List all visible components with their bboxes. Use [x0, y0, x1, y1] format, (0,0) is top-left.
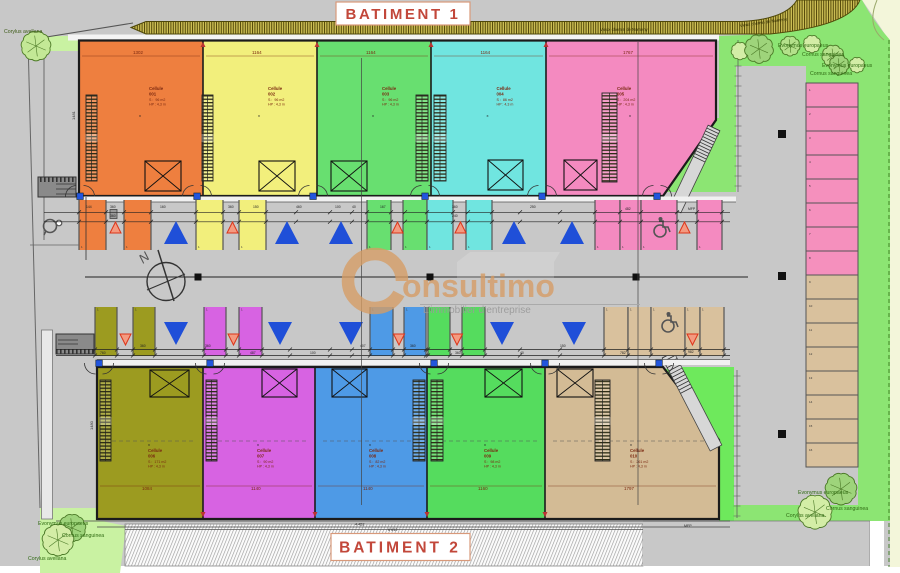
svg-text:1084: 1084 — [142, 486, 153, 491]
svg-text:11: 11 — [809, 328, 812, 332]
svg-text:1160: 1160 — [478, 486, 488, 491]
svg-text:007: 007 — [257, 454, 265, 459]
svg-text:Cornus sanguinea: Cornus sanguinea — [62, 533, 104, 539]
svg-text:Cellule: Cellule — [268, 86, 283, 91]
svg-text:1302: 1302 — [133, 50, 144, 55]
svg-text:Cellule: Cellule — [630, 448, 645, 453]
svg-text:HP : 4,3 m: HP : 4,3 m — [617, 103, 634, 107]
svg-text:16: 16 — [809, 448, 813, 452]
svg-text:360: 360 — [228, 205, 234, 209]
svg-text:1164: 1164 — [366, 50, 376, 55]
svg-text:40: 40 — [352, 205, 356, 209]
svg-text:HP : 4,3 m: HP : 4,3 m — [369, 465, 386, 469]
svg-text:160: 160 — [160, 205, 166, 209]
svg-text:Evonymus europaeus: Evonymus europaeus — [778, 43, 829, 49]
svg-text:S : 96 m2: S : 96 m2 — [382, 98, 398, 102]
svg-text:482: 482 — [625, 207, 631, 211]
svg-text:HP : 4,3 m: HP : 4,3 m — [268, 103, 285, 107]
svg-text:15: 15 — [809, 424, 813, 428]
svg-text:360: 360 — [110, 205, 116, 209]
svg-text:487: 487 — [250, 351, 256, 355]
svg-text:1164: 1164 — [481, 50, 491, 55]
svg-text:x: x — [369, 442, 371, 447]
svg-text:100: 100 — [335, 205, 341, 209]
svg-text:240: 240 — [452, 214, 458, 218]
svg-text:S : 96 m2: S : 96 m2 — [149, 98, 165, 102]
svg-text:HP : 4,3 m: HP : 4,3 m — [630, 465, 647, 469]
svg-text:HP : 4,3 m: HP : 4,3 m — [257, 465, 274, 469]
svg-text:250: 250 — [530, 205, 536, 209]
svg-text:Corylus avellana: Corylus avellana — [786, 513, 824, 519]
svg-text:982: 982 — [688, 350, 694, 354]
svg-text:HP : 4,3 m: HP : 4,3 m — [497, 103, 514, 107]
svg-text:460: 460 — [296, 205, 302, 209]
svg-text:1164: 1164 — [252, 50, 262, 55]
svg-text:x: x — [372, 113, 374, 118]
svg-text:S : 90 m2: S : 90 m2 — [257, 460, 273, 464]
svg-text:360: 360 — [452, 205, 458, 209]
svg-text:S : 261 m2: S : 261 m2 — [630, 460, 648, 464]
svg-text:005: 005 — [617, 92, 625, 97]
svg-text:360: 360 — [205, 344, 211, 348]
svg-text:x: x — [630, 442, 632, 447]
svg-text:12: 12 — [809, 352, 813, 356]
svg-text:Cornus sanguinea: Cornus sanguinea — [810, 71, 852, 77]
svg-text:1140: 1140 — [363, 486, 373, 491]
svg-text:S : 204 m2: S : 204 m2 — [617, 98, 635, 102]
svg-text:10: 10 — [809, 304, 813, 308]
svg-text:002: 002 — [268, 92, 276, 97]
svg-text:L’immobilier d’entreprise: L’immobilier d’entreprise — [423, 305, 531, 316]
svg-text:360: 360 — [410, 344, 416, 348]
svg-text:360: 360 — [140, 344, 146, 348]
svg-text:Cellule: Cellule — [257, 448, 272, 453]
svg-text:150: 150 — [253, 205, 259, 209]
svg-text:40: 40 — [520, 351, 524, 355]
svg-text:360: 360 — [455, 351, 461, 355]
svg-text:Vieux chemin de Nomeny: Vieux chemin de Nomeny — [600, 27, 649, 32]
svg-text:HP : 4,3 m: HP : 4,3 m — [484, 465, 501, 469]
svg-text:x: x — [487, 113, 489, 118]
svg-text:Corylus avellana: Corylus avellana — [28, 556, 66, 562]
svg-text:1767: 1767 — [623, 50, 634, 55]
svg-text:14: 14 — [809, 400, 813, 404]
svg-text:x: x — [484, 442, 486, 447]
svg-text:x: x — [258, 113, 260, 118]
svg-text:003: 003 — [382, 92, 390, 97]
svg-text:004: 004 — [497, 92, 505, 97]
svg-text:4 452: 4 452 — [355, 523, 365, 527]
svg-text:x: x — [148, 442, 150, 447]
svg-text:Evonymus europaeus: Evonymus europaeus — [798, 490, 849, 496]
svg-text:MFP: MFP — [684, 524, 692, 528]
svg-text:Cellule: Cellule — [148, 448, 163, 453]
svg-text:010: 010 — [630, 454, 638, 459]
svg-text:360: 360 — [110, 214, 116, 218]
svg-text:HP : 4,3 m: HP : 4,3 m — [149, 103, 166, 107]
svg-text:009: 009 — [484, 454, 492, 459]
svg-text:Cellule: Cellule — [617, 86, 632, 91]
svg-text:x: x — [629, 113, 631, 118]
svg-text:Cornus sanguinea: Cornus sanguinea — [826, 506, 868, 512]
svg-text:001: 001 — [149, 92, 157, 97]
svg-text:Evonymus europaeus: Evonymus europaeus — [822, 63, 873, 69]
svg-text:407: 407 — [360, 344, 366, 348]
svg-text:BATIMENT 2: BATIMENT 2 — [339, 540, 461, 557]
svg-text:S : 86 m2: S : 86 m2 — [497, 98, 513, 102]
svg-text:782: 782 — [620, 351, 626, 355]
svg-text:Corylus avellana: Corylus avellana — [4, 29, 42, 35]
svg-text:760: 760 — [100, 351, 106, 355]
svg-text:HP : 4,3 m: HP : 4,3 m — [148, 465, 165, 469]
svg-text:MFP: MFP — [688, 207, 696, 211]
svg-text:167: 167 — [380, 205, 386, 209]
svg-text:Cellule: Cellule — [382, 86, 397, 91]
svg-text:008: 008 — [369, 454, 377, 459]
svg-text:Evonymus europaeus: Evonymus europaeus — [38, 521, 89, 527]
svg-text:6 612: 6 612 — [388, 528, 398, 532]
svg-text:S : 96 m2: S : 96 m2 — [268, 98, 284, 102]
svg-text:Cellule: Cellule — [369, 448, 384, 453]
svg-text:100: 100 — [310, 351, 316, 355]
svg-text:006: 006 — [148, 454, 156, 459]
svg-text:13: 13 — [809, 376, 813, 380]
svg-text:HP : 4,3 m: HP : 4,3 m — [382, 103, 399, 107]
svg-text:x: x — [139, 113, 141, 118]
svg-text:S : 98 m2: S : 98 m2 — [484, 460, 500, 464]
svg-text:150: 150 — [560, 344, 566, 348]
svg-text:x: x — [257, 442, 259, 447]
svg-text:1480: 1480 — [89, 420, 94, 430]
svg-text:S : 82 m2: S : 82 m2 — [369, 460, 385, 464]
svg-text:S : 171 m2: S : 171 m2 — [148, 460, 166, 464]
svg-text:Cellule: Cellule — [149, 86, 164, 91]
svg-text:Cellule: Cellule — [497, 86, 512, 91]
svg-text:BATIMENT 1: BATIMENT 1 — [346, 6, 461, 23]
svg-text:144: 144 — [86, 205, 92, 209]
svg-text:1797: 1797 — [624, 486, 635, 491]
svg-text:1140: 1140 — [251, 486, 261, 491]
svg-text:Cellule: Cellule — [484, 448, 499, 453]
svg-text:1481: 1481 — [71, 110, 76, 120]
svg-text:Cornus sanguinea: Cornus sanguinea — [802, 52, 844, 58]
svg-text:onsultimo: onsultimo — [402, 268, 555, 304]
